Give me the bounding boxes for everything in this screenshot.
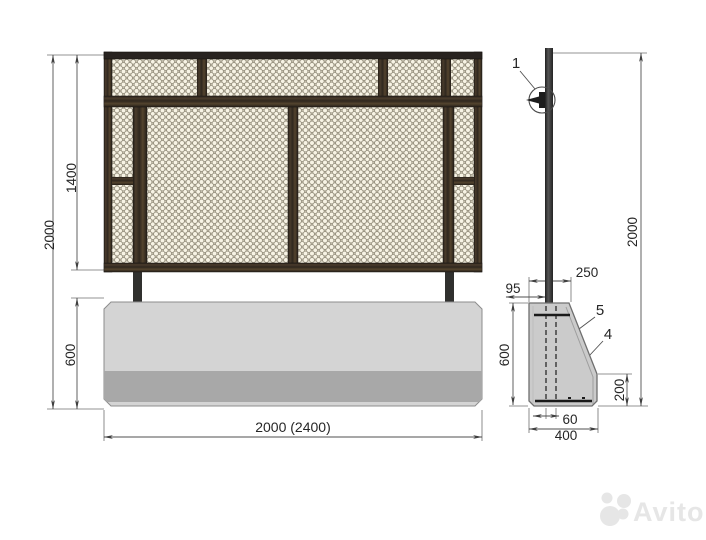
watermark-logo-icon bbox=[600, 506, 620, 526]
front-view bbox=[104, 52, 482, 406]
dim-post-width-label: 60 bbox=[562, 412, 577, 427]
anchor-post-left bbox=[133, 272, 142, 303]
top-rail bbox=[104, 52, 482, 59]
mid-rail bbox=[104, 96, 482, 107]
dim-width-label: 2000 (2400) bbox=[255, 419, 331, 435]
side-view bbox=[526, 48, 597, 406]
watermark-logo-icon bbox=[602, 493, 613, 504]
frame-left bbox=[104, 52, 112, 272]
bracket-pin-icon bbox=[526, 97, 539, 104]
vertical-post-c bbox=[443, 107, 454, 263]
bottom-rail bbox=[104, 263, 482, 272]
dim-side-height-label: 2000 bbox=[625, 217, 640, 247]
watermark-brand-label: Avito bbox=[633, 497, 705, 527]
dim-side-base-height-label: 600 bbox=[497, 344, 512, 367]
callout-4-label: 4 bbox=[604, 326, 612, 343]
left-column-crossbar bbox=[112, 177, 133, 185]
top-band-divider-2 bbox=[378, 59, 388, 97]
mesh-top-band bbox=[112, 59, 474, 97]
watermark: Avito bbox=[600, 493, 705, 528]
leader-callout-1 bbox=[520, 71, 535, 89]
concrete-base-dark-strip bbox=[104, 371, 482, 402]
watermark-logo-icon bbox=[617, 494, 631, 508]
vertical-post-a bbox=[133, 107, 147, 263]
dim-base-height-label: 600 bbox=[63, 344, 78, 367]
dim-back-height-label: 200 bbox=[612, 379, 627, 402]
side-post bbox=[545, 48, 553, 307]
concrete-base-section bbox=[529, 303, 597, 406]
frame-right bbox=[474, 52, 482, 272]
dim-total-height-label: 2000 bbox=[42, 220, 57, 250]
right-column-crossbar bbox=[454, 177, 474, 185]
mesh-panel-2 bbox=[298, 107, 443, 263]
callout-1-label: 1 bbox=[512, 55, 520, 72]
mesh-panel-1 bbox=[147, 107, 288, 263]
dim-base-width-label: 400 bbox=[555, 428, 578, 443]
anchor-post-right bbox=[445, 272, 454, 303]
top-band-divider-1 bbox=[197, 59, 207, 97]
top-band-divider-3 bbox=[441, 59, 451, 97]
vertical-post-b bbox=[288, 107, 298, 263]
dim-top-width-label: 250 bbox=[576, 265, 599, 280]
dim-post-offset-label: 95 bbox=[505, 281, 520, 296]
watermark-logo-icon bbox=[618, 509, 629, 520]
callout-5-label: 5 bbox=[596, 302, 604, 319]
dim-panel-height-label: 1400 bbox=[64, 163, 79, 193]
technical-drawing-canvas: 2000 1400 600 2000 (2400) 2000 250 95 60… bbox=[0, 0, 706, 540]
bracket-plate bbox=[539, 92, 545, 108]
drawing-svg: 2000 1400 600 2000 (2400) 2000 250 95 60… bbox=[0, 0, 706, 540]
